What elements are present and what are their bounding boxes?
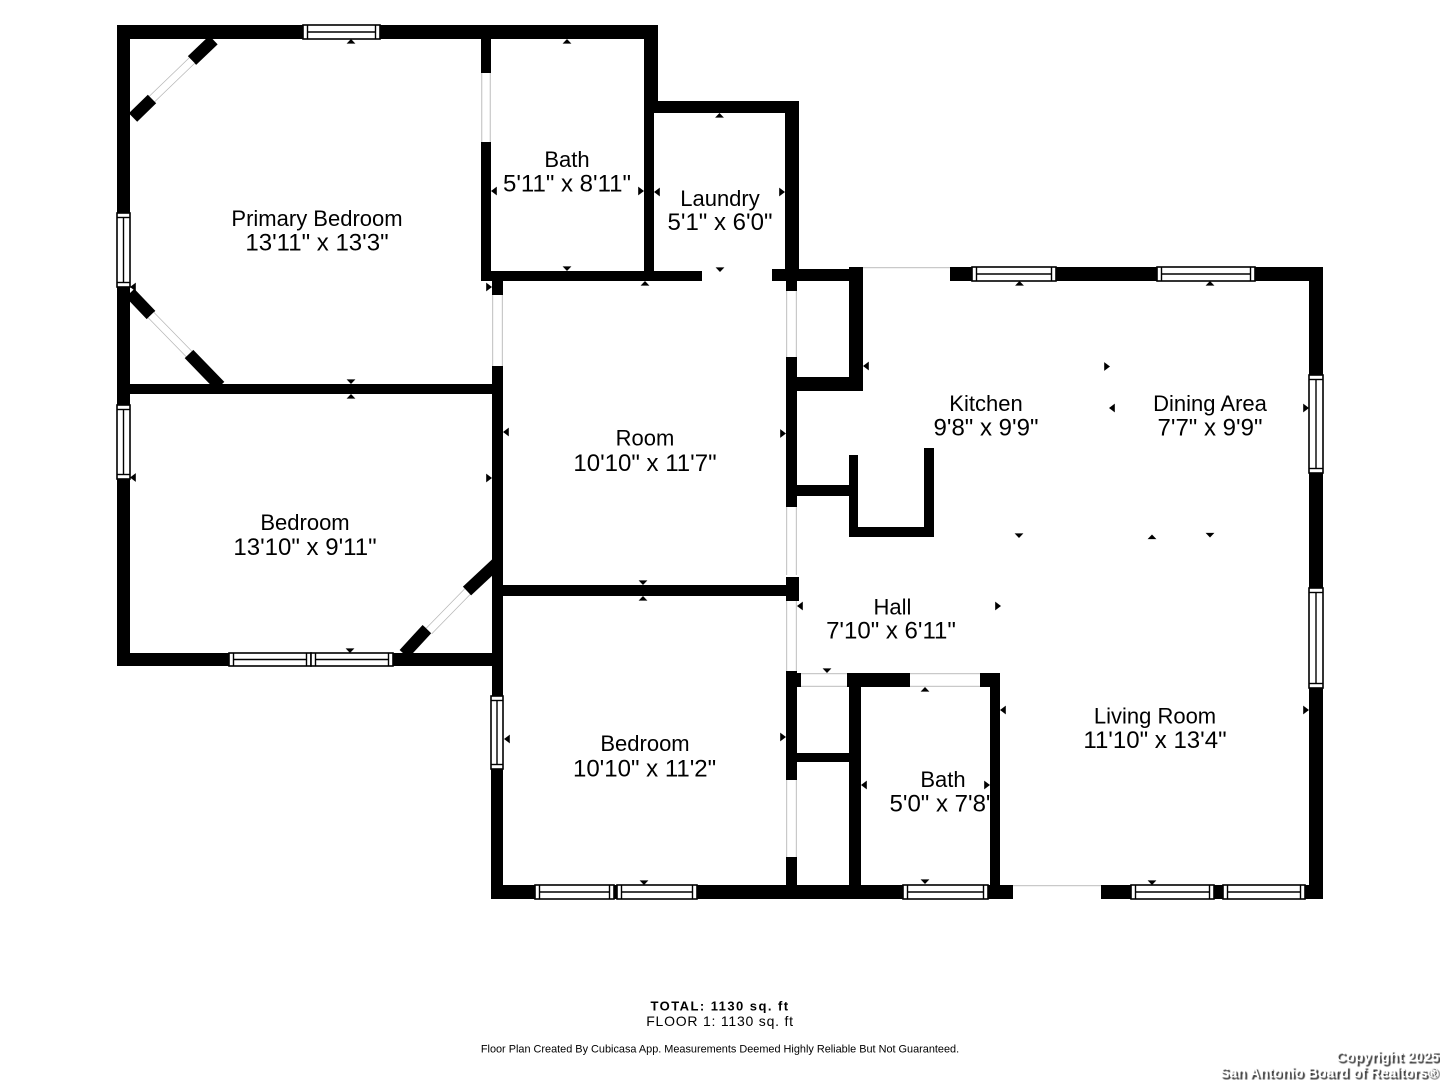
svg-text:Hall: Hall — [874, 595, 912, 620]
svg-text:10'10" x 11'7": 10'10" x 11'7" — [573, 450, 716, 477]
svg-text:Laundry: Laundry — [680, 186, 760, 211]
svg-text:Primary Bedroom: Primary Bedroom — [231, 206, 402, 231]
svg-text:Bedroom: Bedroom — [600, 731, 689, 756]
svg-text:5'1" x 6'0": 5'1" x 6'0" — [668, 209, 773, 236]
svg-text:7'10" x 6'11": 7'10" x 6'11" — [826, 617, 956, 644]
svg-text:Room: Room — [616, 426, 675, 451]
svg-text:5'11" x 8'11": 5'11" x 8'11" — [503, 170, 631, 197]
svg-text:5'0" x 7'8": 5'0" x 7'8" — [890, 790, 995, 817]
svg-text:Living Room: Living Room — [1094, 704, 1216, 729]
svg-text:13'10" x 9'11": 13'10" x 9'11" — [233, 534, 376, 561]
svg-text:Bath: Bath — [544, 147, 589, 172]
svg-text:7'7" x 9'9": 7'7" x 9'9" — [1158, 414, 1263, 441]
svg-text:TOTAL: 1130 sq. ft: TOTAL: 1130 sq. ft — [650, 999, 789, 1014]
svg-text:13'11" x 13'3": 13'11" x 13'3" — [245, 229, 388, 256]
svg-text:Floor Plan Created By Cubicasa: Floor Plan Created By Cubicasa App. Meas… — [481, 1044, 959, 1056]
svg-text:9'8" x 9'9": 9'8" x 9'9" — [934, 414, 1039, 441]
svg-text:Bedroom: Bedroom — [260, 510, 349, 535]
svg-text:Kitchen: Kitchen — [949, 391, 1022, 416]
svg-text:11'10" x 13'4": 11'10" x 13'4" — [1083, 727, 1226, 754]
svg-text:10'10" x 11'2": 10'10" x 11'2" — [573, 755, 716, 782]
svg-text:Copyright 2025: Copyright 2025 — [1336, 1050, 1439, 1066]
svg-text:San Antonio Board of Realtors®: San Antonio Board of Realtors® — [1220, 1066, 1439, 1080]
svg-text:Dining Area: Dining Area — [1153, 391, 1268, 416]
svg-text:FLOOR 1: 1130 sq. ft: FLOOR 1: 1130 sq. ft — [646, 1013, 794, 1029]
svg-text:Bath: Bath — [920, 767, 965, 792]
